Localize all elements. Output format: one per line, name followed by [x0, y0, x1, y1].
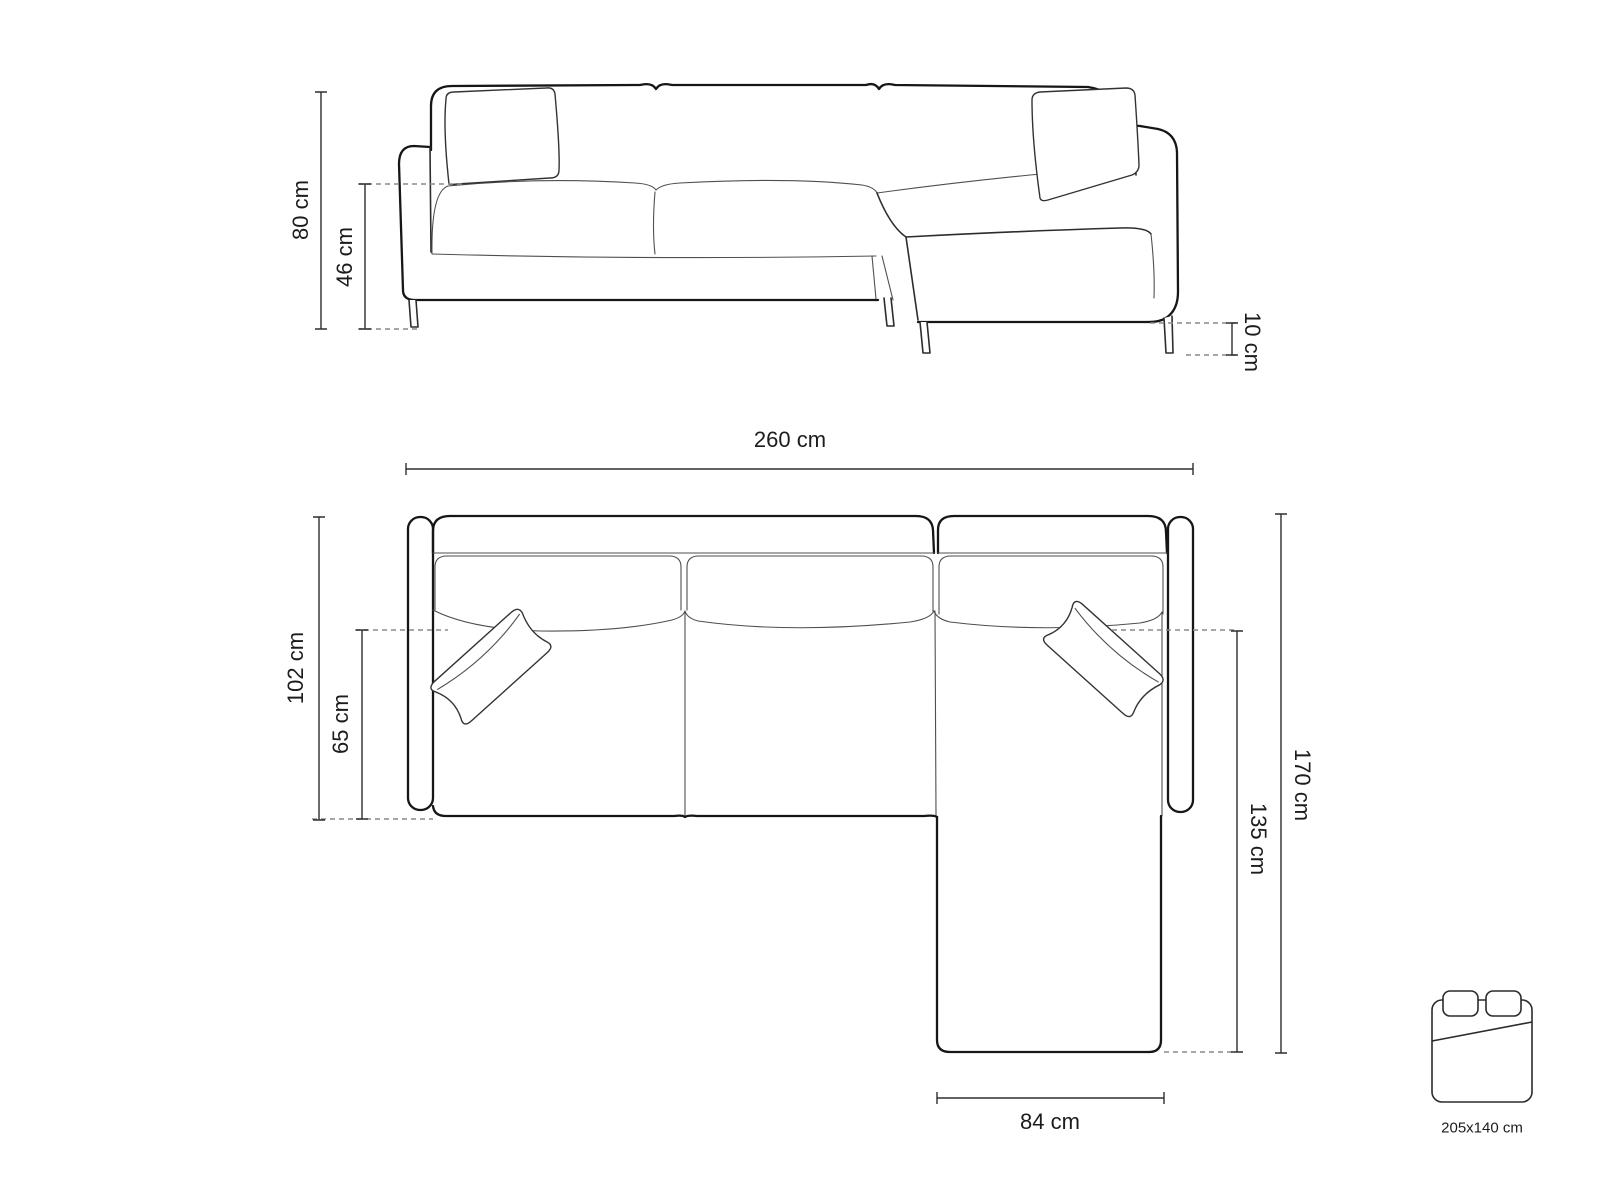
front-leg-left — [409, 300, 418, 327]
front-chaise-cushion-right-edge — [1151, 234, 1154, 298]
dim-chaise-length-label: 135 cm — [1247, 803, 1269, 875]
top-pillow-right — [1041, 599, 1166, 719]
dim-leg-height-line — [1226, 323, 1238, 355]
front-left-armrest — [399, 146, 430, 300]
top-seat-curve-middle — [685, 611, 934, 628]
dim-overall-width-label: 260 cm — [754, 429, 826, 451]
dim-seat-depth-label: 65 cm — [330, 694, 352, 754]
dim-chaise-width-line — [937, 1092, 1164, 1104]
front-view-drawing — [315, 84, 1239, 355]
top-view-drawing — [312, 463, 1287, 1104]
dim-seat-depth-line — [356, 630, 368, 819]
front-left-armrest-inner-edge — [430, 147, 431, 252]
top-back-cushion-left — [435, 556, 681, 610]
front-seat-base-seam — [432, 254, 876, 258]
top-right-armrest — [1168, 517, 1193, 812]
top-chaise-left-edge-upper — [935, 611, 936, 815]
front-seat-cushion-right-top — [656, 180, 877, 193]
dim-overall-length-line — [1275, 514, 1287, 1053]
top-backrest-band-left — [433, 516, 934, 553]
dim-overall-width-line — [406, 463, 1193, 475]
front-chaise-front-left-slope — [877, 193, 906, 237]
front-chaise-front-left-edge — [906, 237, 918, 320]
top-back-cushion-right — [939, 556, 1163, 614]
top-backrest-band-right — [938, 516, 1167, 553]
dim-seat-height-label: 46 cm — [334, 227, 356, 287]
top-seat-curve-right — [934, 611, 1162, 628]
dim-seat-height-line — [359, 184, 371, 329]
dim-leg-height-label: 10 cm — [1241, 312, 1263, 372]
front-leg-chaise-right — [1164, 316, 1173, 353]
top-pillow-left — [429, 607, 554, 727]
dim-overall-height-line — [315, 92, 327, 329]
dim-overall-height-label: 80 cm — [290, 180, 312, 240]
top-seat-curve-left — [433, 610, 685, 631]
sleeping-area-label: 205x140 cm — [1441, 1121, 1523, 1136]
front-pillow-right — [1032, 88, 1139, 201]
dim-overall-depth-line — [313, 517, 325, 820]
front-seat-cushion-crease — [654, 192, 656, 254]
top-left-armrest — [408, 517, 433, 810]
front-leg-chaise-left — [920, 322, 930, 353]
front-seat-cushion-left-top — [432, 181, 656, 254]
dim-chaise-length-line — [1231, 631, 1243, 1052]
dim-overall-length-label: 170 cm — [1291, 749, 1313, 821]
bed-pillow-left — [1443, 991, 1478, 1016]
dim-overall-depth-label: 102 cm — [285, 632, 307, 704]
top-back-cushion-middle — [687, 556, 933, 612]
sofa-dimension-diagram: 80 cm 46 cm 10 cm 260 cm 102 cm 65 cm 17… — [0, 0, 1600, 1200]
front-chaise-left-gap-edge — [882, 256, 893, 300]
bed-pillow-right — [1486, 991, 1521, 1016]
dim-chaise-width-label: 84 cm — [1020, 1111, 1080, 1133]
top-chaise-outline — [937, 816, 1161, 1052]
front-leg-main-right — [884, 298, 894, 326]
front-main-right-edge — [872, 256, 876, 299]
front-pillow-left — [445, 88, 559, 185]
front-chaise-front-top-edge — [906, 228, 1151, 237]
bed-icon — [1432, 991, 1532, 1102]
front-chaise-bottom-edge — [918, 318, 1166, 322]
diagram-linework — [0, 0, 1600, 1200]
